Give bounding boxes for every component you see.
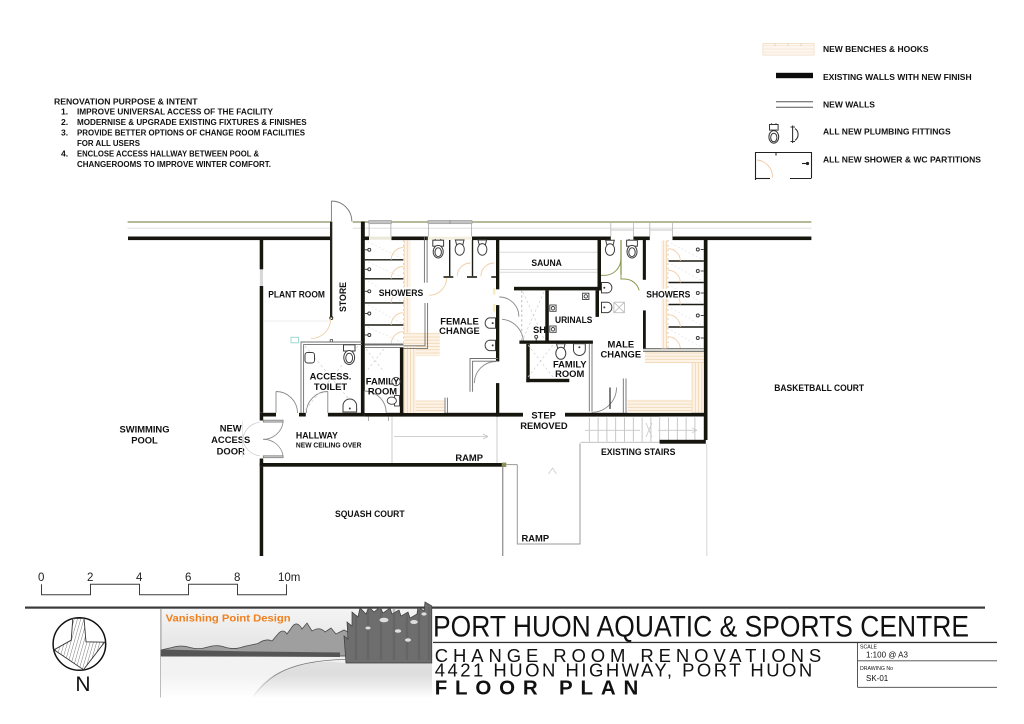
svg-text:ACCESS.: ACCESS.	[310, 371, 352, 382]
svg-text:ROOM: ROOM	[555, 368, 584, 379]
svg-text:CHANGEROOMS TO IMPROVE WINTER: CHANGEROOMS TO IMPROVE WINTER COMFORT.	[77, 159, 271, 169]
svg-text:SHOWERS: SHOWERS	[379, 287, 424, 298]
svg-text:EXISTING WALLS WITH NEW FINISH: EXISTING WALLS WITH NEW FINISH	[823, 72, 972, 82]
svg-text:FOR ALL USERS: FOR ALL USERS	[77, 138, 140, 148]
svg-text:SH: SH	[533, 324, 546, 335]
svg-text:STEP: STEP	[531, 409, 556, 420]
svg-text:BASKETBALL COURT: BASKETBALL COURT	[774, 382, 864, 393]
svg-text:STORE: STORE	[337, 282, 348, 312]
svg-text:ALL NEW SHOWER & WC PARTITIONS: ALL NEW SHOWER & WC PARTITIONS	[823, 154, 981, 164]
svg-text:RAMP: RAMP	[455, 452, 483, 463]
svg-text:SAUNA: SAUNA	[531, 257, 562, 268]
svg-text:REMOVED: REMOVED	[520, 420, 568, 431]
svg-text:8: 8	[234, 572, 240, 584]
svg-text:MODERNISE & UPGRADE EXISTING F: MODERNISE & UPGRADE EXISTING FIXTURES & …	[77, 117, 307, 127]
svg-text:ENCLOSE ACCESS HALLWAY BETWEEN: ENCLOSE ACCESS HALLWAY BETWEEN POOL &	[77, 149, 259, 159]
svg-text:6: 6	[185, 572, 191, 584]
svg-text:URINALS: URINALS	[555, 314, 592, 325]
svg-text:NEW BENCHES & HOOKS: NEW BENCHES & HOOKS	[823, 44, 929, 54]
svg-text:SK-01: SK-01	[866, 674, 889, 683]
svg-text:PLANT ROOM: PLANT ROOM	[268, 288, 325, 299]
svg-text:POOL: POOL	[131, 435, 158, 446]
svg-text:PORT HUON AQUATIC & SPORTS CEN: PORT HUON AQUATIC & SPORTS CENTRE	[433, 611, 969, 644]
svg-text:NEW: NEW	[220, 423, 242, 434]
svg-text:FLOOR PLAN: FLOOR PLAN	[435, 676, 639, 699]
svg-text:2.: 2.	[61, 117, 68, 127]
svg-text:CHANGE: CHANGE	[439, 325, 480, 336]
svg-text:NEW WALLS: NEW WALLS	[823, 100, 875, 110]
svg-text:2: 2	[87, 572, 93, 584]
svg-text:CHANGE: CHANGE	[600, 349, 641, 360]
svg-text:SHOWERS: SHOWERS	[646, 289, 690, 300]
svg-text:1.: 1.	[61, 107, 68, 117]
svg-text:TOILET: TOILET	[314, 381, 347, 392]
svg-text:DRAWING No: DRAWING No	[860, 666, 893, 672]
svg-text:EXISTING STAIRS: EXISTING STAIRS	[601, 446, 675, 457]
svg-text:NEW CEILING OVER: NEW CEILING OVER	[296, 442, 362, 449]
svg-text:3.: 3.	[61, 128, 68, 138]
svg-text:SQUASH COURT: SQUASH COURT	[335, 508, 405, 519]
svg-text:4.: 4.	[61, 149, 68, 159]
svg-text:HALLWAY: HALLWAY	[296, 429, 339, 440]
svg-text:ACCESS: ACCESS	[211, 434, 250, 445]
svg-text:RENOVATION PURPOSE & INTENT: RENOVATION PURPOSE & INTENT	[54, 97, 198, 107]
svg-text:10m: 10m	[278, 572, 300, 584]
svg-text:DOOR: DOOR	[217, 446, 245, 457]
svg-text:1:100 @ A3: 1:100 @ A3	[866, 651, 908, 660]
svg-text:IMPROVE UNIVERSAL ACCESS OF TH: IMPROVE UNIVERSAL ACCESS OF THE FACILITY	[77, 107, 273, 117]
svg-text:Vanishing Point Design: Vanishing Point Design	[166, 614, 291, 625]
svg-text:N: N	[75, 673, 90, 696]
svg-text:RAMP: RAMP	[521, 533, 549, 544]
svg-text:ALL NEW PLUMBING FITTINGS: ALL NEW PLUMBING FITTINGS	[823, 127, 951, 137]
svg-text:4: 4	[136, 572, 143, 584]
svg-text:0: 0	[38, 572, 44, 584]
svg-text:SWIMMING: SWIMMING	[120, 424, 170, 435]
svg-text:PROVIDE BETTER OPTIONS OF CHAN: PROVIDE BETTER OPTIONS OF CHANGE ROOM FA…	[77, 128, 305, 138]
svg-text:ROOM: ROOM	[368, 385, 397, 396]
